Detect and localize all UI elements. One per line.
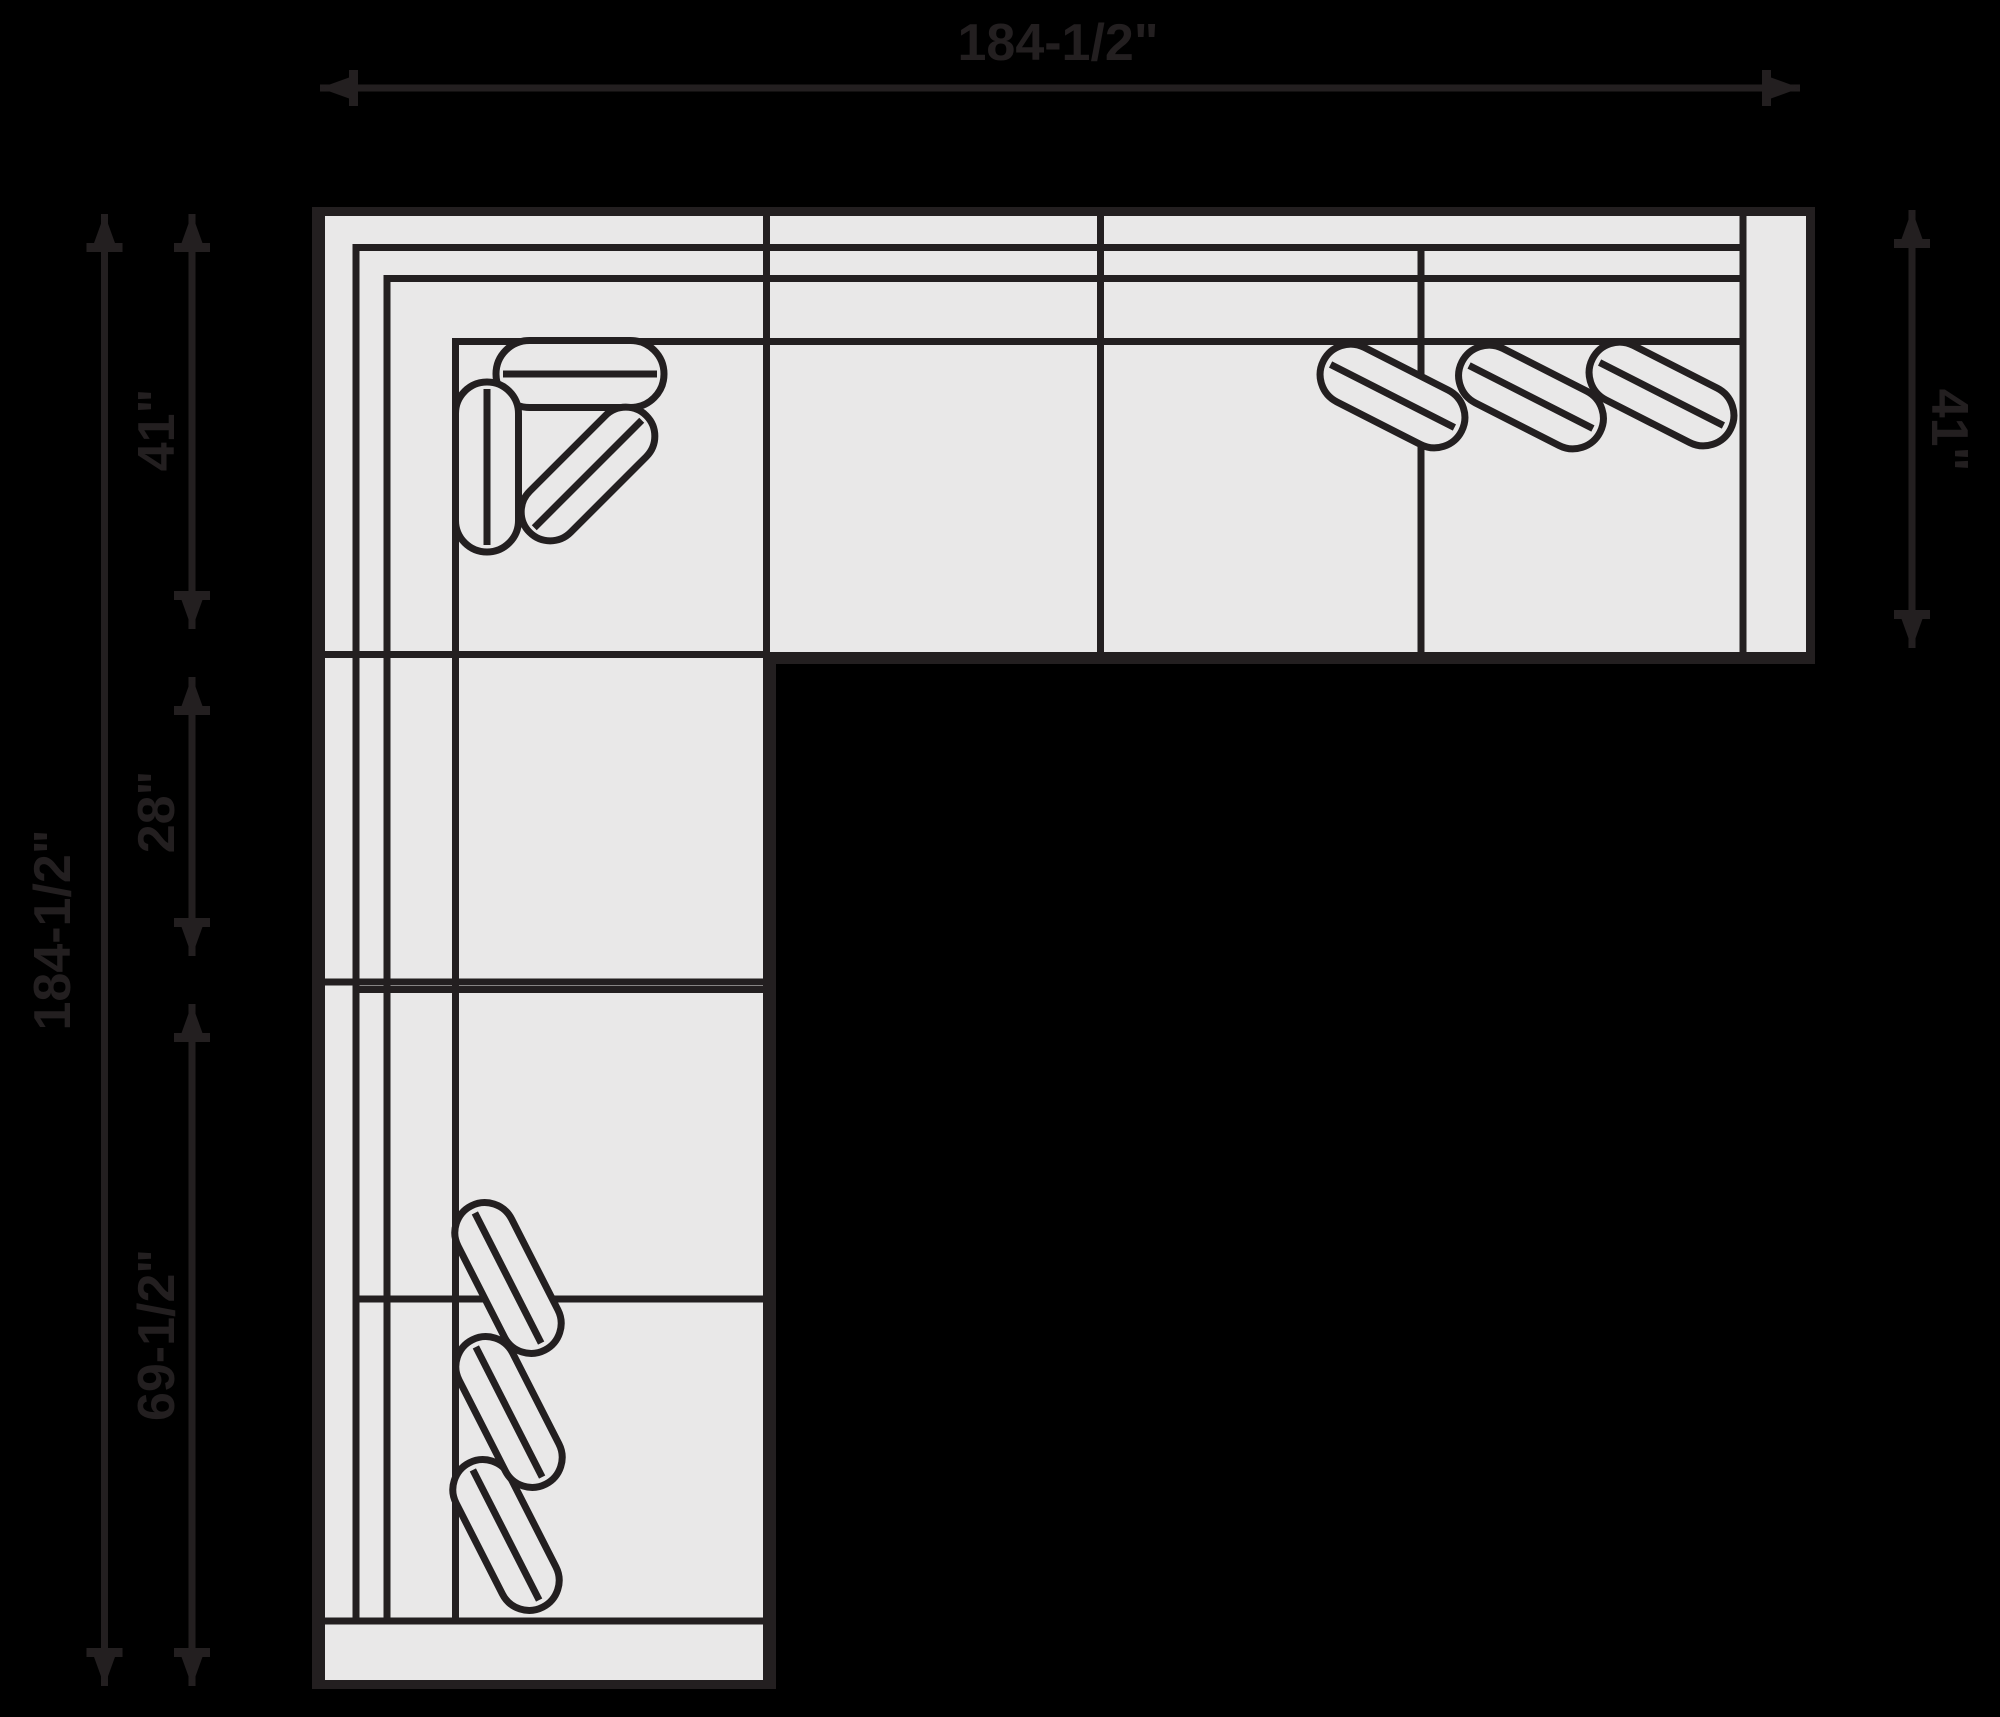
svg-text:69-1/2": 69-1/2"	[128, 1249, 186, 1421]
svg-text:41": 41"	[128, 389, 186, 472]
svg-text:184-1/2": 184-1/2"	[957, 14, 1158, 72]
svg-text:28": 28"	[128, 771, 186, 854]
svg-text:184-1/2": 184-1/2"	[24, 829, 82, 1030]
svg-text:41": 41"	[1920, 389, 1978, 472]
